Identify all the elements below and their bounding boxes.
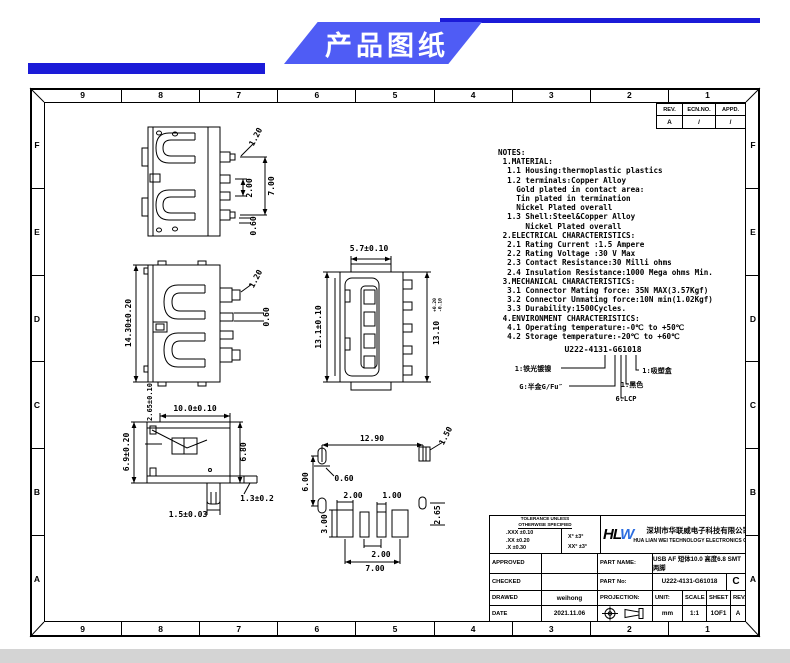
grid-col-label: 2 xyxy=(590,622,668,636)
dim-label: 7.00 xyxy=(267,176,276,195)
dim-label: 6.00 xyxy=(301,472,310,491)
unit-value: mm xyxy=(653,606,683,621)
date-value: 2021.11.06 xyxy=(542,606,598,621)
dim-label: 14.30±0.20 xyxy=(124,299,133,347)
dim-label: 1.00 xyxy=(382,491,401,500)
part-no-row: CHECKED PART No: U222-4131-G61018 C xyxy=(490,574,745,592)
grid-col-label: 4 xyxy=(434,622,512,636)
grid-row-label: D xyxy=(30,275,44,362)
grid-rows-left: FEDCBA xyxy=(30,102,44,622)
ecn-value: / xyxy=(683,116,716,128)
grid-col-label: 7 xyxy=(199,88,277,102)
drawed-value: weihong xyxy=(542,591,598,605)
unit-label: UNIT: xyxy=(653,591,683,605)
dim-label: 1.3±0.2 xyxy=(240,494,274,503)
connector-body xyxy=(144,261,240,386)
dim-label: 2.00 xyxy=(245,178,254,197)
grid-col-label: 2 xyxy=(590,88,668,102)
logo-blue: W xyxy=(620,526,633,543)
profile-view-drawing: 5.7±0.10 13.1±0.10 13.10 +0.20 -0.10 xyxy=(303,238,453,398)
rev-header: REV. xyxy=(657,104,683,116)
dim-label: 1.20 xyxy=(247,268,264,289)
grid-col-label: 8 xyxy=(121,622,199,636)
grid-col-label: 1 xyxy=(668,88,746,102)
tolerance-block: TOLERANCE UNLESS OTHERWISE SPECIFIED .XX… xyxy=(490,516,601,553)
part-name-label: PART NAME: xyxy=(598,554,653,573)
dim-label: 0.60 xyxy=(262,307,271,326)
scale-value: 1:1 xyxy=(683,606,707,621)
appd-header: APPD. xyxy=(716,104,745,116)
side-view-drawing: 2.65±0.10 10.0±0.10 6.9±0.20 6.80 1.5±0.… xyxy=(112,380,287,530)
company-name-en: HUA LIAN WEI TECHNOLOGY ELECTRONICS CO;L… xyxy=(633,538,745,544)
dim-label: 0.60 xyxy=(334,474,353,483)
grid-col-label: 8 xyxy=(121,88,199,102)
grid-col-label: 9 xyxy=(44,622,121,636)
grid-columns-bottom: 987654321 xyxy=(44,622,746,636)
part-no-value: U222-4131-G61018 xyxy=(653,574,727,591)
grid-row-label: E xyxy=(30,188,44,275)
part-code: U222-4131-G61018 xyxy=(564,345,641,354)
company-block: HLW 深圳市华联威电子科技有限公司 HUA LIAN WEI TECHNOLO… xyxy=(601,516,745,553)
pads xyxy=(318,447,430,537)
dim-label: 2.65±0.10 xyxy=(146,383,154,421)
grid-row-label: B xyxy=(746,448,760,535)
drawing-sheet: 产品图纸 987654321 987654321 FEDCBA FEDCBA R… xyxy=(0,0,790,663)
grid-row-label: A xyxy=(746,535,760,622)
dim-label: 13.10 xyxy=(432,321,441,345)
ecn-header: ECN.NO. xyxy=(683,104,716,116)
rev-value: A xyxy=(731,606,745,621)
third-angle-projection-icon xyxy=(601,606,649,621)
grid-col-label: 5 xyxy=(355,622,433,636)
dim-label: 2.00 xyxy=(371,550,390,559)
banner: 产品图纸 xyxy=(284,22,482,64)
callout-shell-finish: 1:铁光镀镍 xyxy=(515,364,551,373)
checked-value xyxy=(542,574,598,591)
grid-row-label: F xyxy=(30,102,44,188)
callout-material: 6:LCP xyxy=(615,395,636,403)
dim-label: 1.20 xyxy=(247,126,264,147)
header-accent-bar xyxy=(28,63,265,74)
grid-col-label: 1 xyxy=(668,622,746,636)
part-name-value: USB AF 短体10.0 高度6.8 SMT 两脚 xyxy=(653,554,745,573)
checked-label: CHECKED xyxy=(490,574,542,591)
dim-label: 7.00 xyxy=(365,564,384,573)
dim-label: 12.90 xyxy=(360,434,384,443)
grid-col-label: 3 xyxy=(512,622,590,636)
dim-label: 0.60 xyxy=(249,216,258,235)
dim-label: 13.1±0.10 xyxy=(314,305,323,349)
dim-label: 3.00 xyxy=(320,514,329,533)
company-logo: HLW xyxy=(603,526,633,543)
top-view-drawing: 1.20 2.00 7.00 0.60 xyxy=(95,118,285,248)
grid-col-label: 5 xyxy=(355,88,433,102)
grid-row-label: C xyxy=(30,361,44,448)
grid-row-label: A xyxy=(30,535,44,622)
drawed-label: DRAWED xyxy=(490,591,542,605)
dim-label: 10.0±0.10 xyxy=(173,404,217,413)
values-row: DATE 2021.11.06 mm 1:1 1OF1 A xyxy=(490,606,745,621)
dim-label: 5.7±0.10 xyxy=(350,244,389,253)
tolerance-linear: .XXX ±0.10 .XX ±0.20 .X ±0.30 xyxy=(503,529,562,553)
grid-row-label: B xyxy=(30,448,44,535)
dim-label: 6.9±0.20 xyxy=(122,433,131,472)
callout-color: 1:黑色 xyxy=(621,380,643,389)
dim-label: 1.5±0.03 xyxy=(169,510,208,519)
approved-label: APPROVED xyxy=(490,554,542,573)
date-label: DATE xyxy=(490,606,542,621)
grid-col-label: 7 xyxy=(199,622,277,636)
connector-body xyxy=(335,264,412,390)
dim-label: 1.50 xyxy=(437,425,454,446)
grid-columns-top: 987654321 xyxy=(44,88,746,102)
appd-value: / xyxy=(716,116,745,128)
revision-table: REV. ECN.NO. APPD. A / / xyxy=(656,103,746,129)
part-no-label: PART No: xyxy=(598,574,653,591)
grid-col-label: 6 xyxy=(277,88,355,102)
dim-label: 2.65 xyxy=(433,505,442,524)
page-bottom-margin xyxy=(0,649,790,663)
sheet-value: 1OF1 xyxy=(707,606,731,621)
banner-title: 产品图纸 xyxy=(325,24,449,63)
company-name-cn: 深圳市华联威电子科技有限公司 xyxy=(633,525,745,536)
grid-row-label: C xyxy=(746,361,760,448)
grid-col-label: 4 xyxy=(434,88,512,102)
projection-label: PROJECTION: xyxy=(598,591,653,605)
dim-label-toleranced: 13.10 +0.20 -0.10 xyxy=(432,298,444,345)
grid-col-label: 9 xyxy=(44,88,121,102)
rev-value: A xyxy=(657,116,683,128)
logo-black: HL xyxy=(603,526,620,543)
tolerance-minus: -0.10 xyxy=(438,298,444,312)
callout-packaging: 1:吸塑盒 xyxy=(642,366,672,375)
notes-text: NOTES: 1.MATERIAL: 1.1 Housing:thermopla… xyxy=(498,148,750,341)
tolerance-plus: +0.20 xyxy=(432,298,438,312)
approved-value xyxy=(542,554,598,573)
grid-col-label: 6 xyxy=(277,622,355,636)
footprint-view-drawing: 12.90 1.50 0.60 6.00 2.00 1.00 3.00 2.65… xyxy=(295,420,465,575)
connector-body xyxy=(142,127,235,236)
part-code-callout: U222-4131-G61018 1:铁光镀镍 G:半金G/Fu″ 1:吸塑盒 … xyxy=(495,342,745,422)
labels-row: DRAWED weihong PROJECTION: UNIT: SCALE S… xyxy=(490,591,745,606)
part-name-row: APPROVED PART NAME: USB AF 短体10.0 高度6.8 … xyxy=(490,554,745,574)
sheet-label: SHEET xyxy=(707,591,731,605)
dim-label: 6.80 xyxy=(239,442,248,461)
rev-letter: C xyxy=(727,574,745,591)
tolerance-header: TOLERANCE UNLESS OTHERWISE SPECIFIED xyxy=(518,516,571,529)
callout-plating: G:半金G/Fu″ xyxy=(519,382,563,391)
projection-symbol-cell xyxy=(598,606,653,621)
grid-col-label: 3 xyxy=(512,88,590,102)
header-accent-line xyxy=(440,18,760,23)
rev-label: REV. xyxy=(731,591,745,605)
tolerance-angular: X° ±3° XX° ±3° xyxy=(562,529,587,553)
dimension-lines xyxy=(311,442,445,564)
scale-label: SCALE xyxy=(683,591,707,605)
dim-label: 2.00 xyxy=(343,491,362,500)
title-block: TOLERANCE UNLESS OTHERWISE SPECIFIED .XX… xyxy=(489,515,746,622)
title-block-header-row: TOLERANCE UNLESS OTHERWISE SPECIFIED .XX… xyxy=(490,516,745,554)
